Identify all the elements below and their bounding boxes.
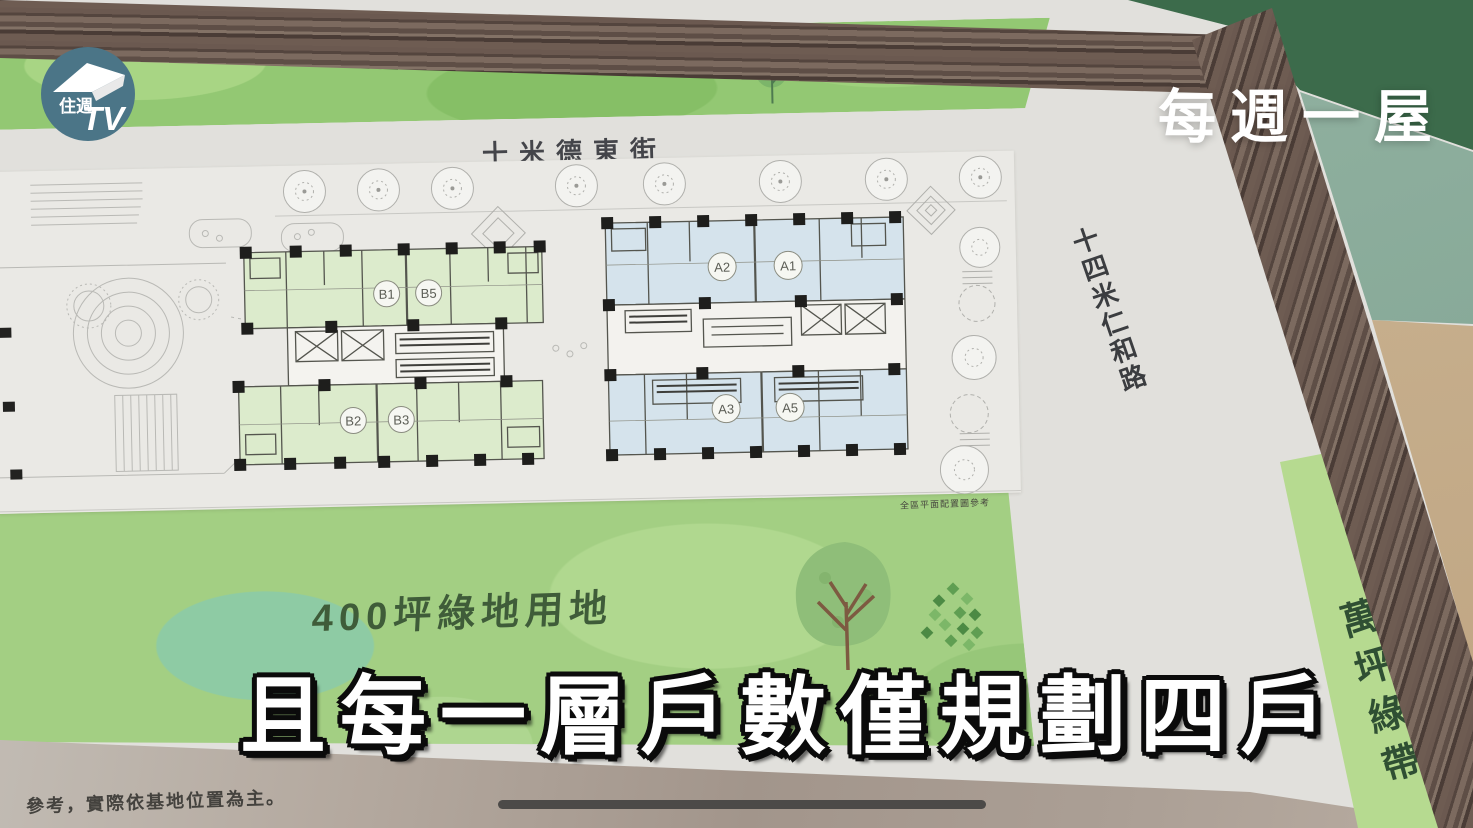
unit-label-b5: B5 (421, 286, 437, 301)
unit-label-b3: B3 (393, 412, 409, 427)
site-plan-drawing: B1 B5 B2 B3 A2 A1 A3 A5 (0, 151, 1021, 514)
watermark-text: 每週一屋 (1158, 70, 1446, 154)
unit-label-a2: A2 (714, 260, 730, 275)
unit-label-a3: A3 (718, 402, 734, 417)
plan-edge-markers (0, 327, 22, 479)
site-plan-sheet: B1 B5 B2 B3 A2 A1 A3 A5 (0, 151, 1021, 514)
unit-label-a5: A5 (782, 400, 798, 415)
building-right (605, 217, 908, 455)
street-tree-row (274, 156, 1007, 216)
unit-label-b2: B2 (345, 413, 361, 428)
logo-text-tv: TV (82, 100, 127, 137)
video-progress-bar[interactable] (498, 800, 986, 809)
video-frame: 德高國小 十米德東街 (0, 0, 1473, 828)
video-subtitle: 且每一層戶數僅規劃四戶 (240, 646, 1340, 771)
diamond-planter (907, 186, 955, 234)
unit-label-b1: B1 (379, 287, 395, 302)
channel-logo: 住週 TV (40, 46, 136, 142)
green-area-label: 400坪綠地用地 (311, 577, 615, 643)
building-left (236, 247, 546, 465)
bush-icon (915, 580, 990, 652)
side-tree-column (935, 227, 1005, 494)
unit-label-a1: A1 (780, 258, 796, 273)
